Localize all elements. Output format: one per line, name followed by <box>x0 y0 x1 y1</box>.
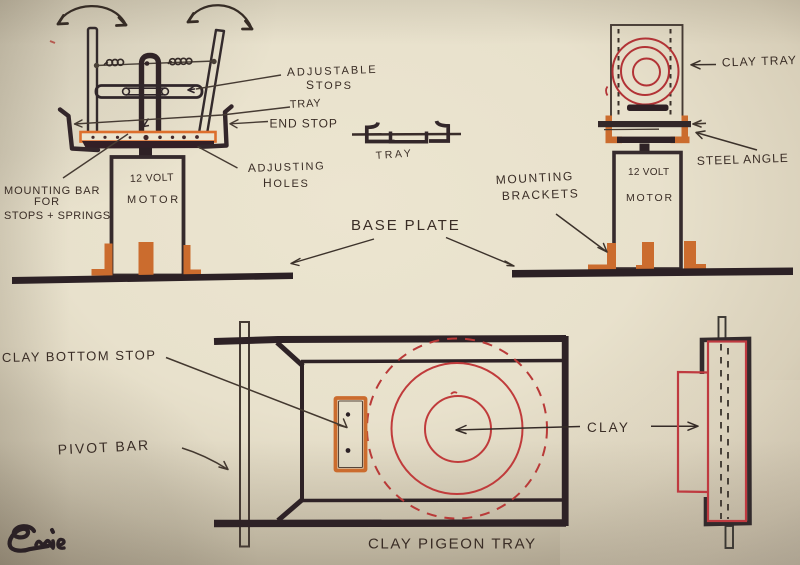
svg-text:MOTOR: MOTOR <box>626 192 674 204</box>
svg-text:STOPS + SPRINGS: STOPS + SPRINGS <box>4 210 111 222</box>
svg-text:HOLES: HOLES <box>263 176 310 190</box>
svg-text:MOTOR: MOTOR <box>127 194 181 206</box>
svg-text:TRAY: TRAY <box>290 97 322 111</box>
svg-text:BRACKETS: BRACKETS <box>502 186 580 203</box>
svg-text:FOR: FOR <box>34 196 60 208</box>
svg-text:12 VOLT: 12 VOLT <box>130 171 175 185</box>
svg-text:STOPS: STOPS <box>306 78 353 92</box>
svg-text:CLAY BOTTOM STOP: CLAY BOTTOM STOP <box>2 347 157 365</box>
svg-text:CLAY TRAY: CLAY TRAY <box>722 53 798 70</box>
svg-text:CLAY PIGEON TRAY: CLAY PIGEON TRAY <box>368 536 537 553</box>
svg-text:12 VOLT: 12 VOLT <box>628 167 669 178</box>
svg-text:BASE PLATE: BASE PLATE <box>351 217 461 234</box>
svg-text:CLAY: CLAY <box>587 420 630 435</box>
svg-text:END STOP: END STOP <box>270 117 338 131</box>
